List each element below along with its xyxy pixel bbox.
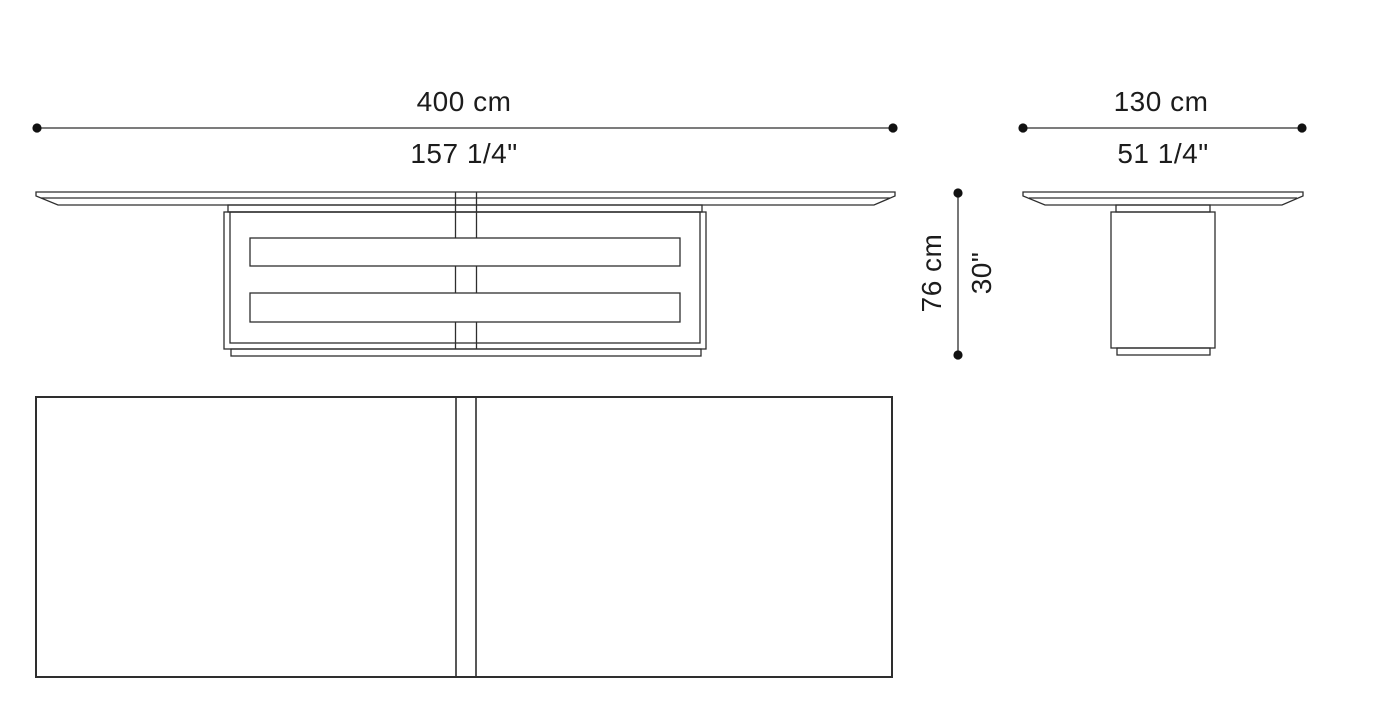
width-dimension-line	[32, 123, 897, 132]
width-label-imperial: 157 1/4"	[410, 140, 517, 168]
height-label-imperial: 30"	[968, 252, 996, 295]
depth-dimension-line	[1018, 123, 1306, 132]
front-pedestal-outer	[224, 212, 706, 349]
height-dim-dot-top	[953, 188, 962, 197]
plan-view	[36, 397, 892, 677]
front-slat-upper	[250, 238, 680, 266]
plan-center-seam	[456, 397, 476, 677]
side-pedestal	[1111, 212, 1215, 348]
width-dim-dot-left	[32, 123, 41, 132]
front-pedestal-inner	[230, 212, 700, 343]
side-plinth	[1117, 348, 1210, 355]
front-support-plate	[228, 205, 702, 212]
depth-label-metric: 130 cm	[1114, 88, 1209, 116]
width-dim-dot-right	[888, 123, 897, 132]
depth-dim-dot-left	[1018, 123, 1027, 132]
side-view	[1023, 192, 1303, 355]
height-dimension-line	[953, 188, 962, 359]
front-view	[36, 192, 895, 356]
side-support-plate	[1116, 205, 1210, 212]
width-label-metric: 400 cm	[417, 88, 512, 116]
depth-label-imperial: 51 1/4"	[1117, 140, 1208, 168]
depth-dim-dot-right	[1297, 123, 1306, 132]
height-dim-dot-bottom	[953, 350, 962, 359]
plan-tabletop-outline	[36, 397, 892, 677]
drawing-canvas: 400 cm 157 1/4" 130 cm 51 1/4" 76 cm 30"	[0, 0, 1400, 711]
front-slat-lower	[250, 293, 680, 322]
front-plinth	[231, 349, 701, 356]
front-center-seam	[456, 192, 477, 349]
height-label-metric: 76 cm	[918, 234, 946, 313]
